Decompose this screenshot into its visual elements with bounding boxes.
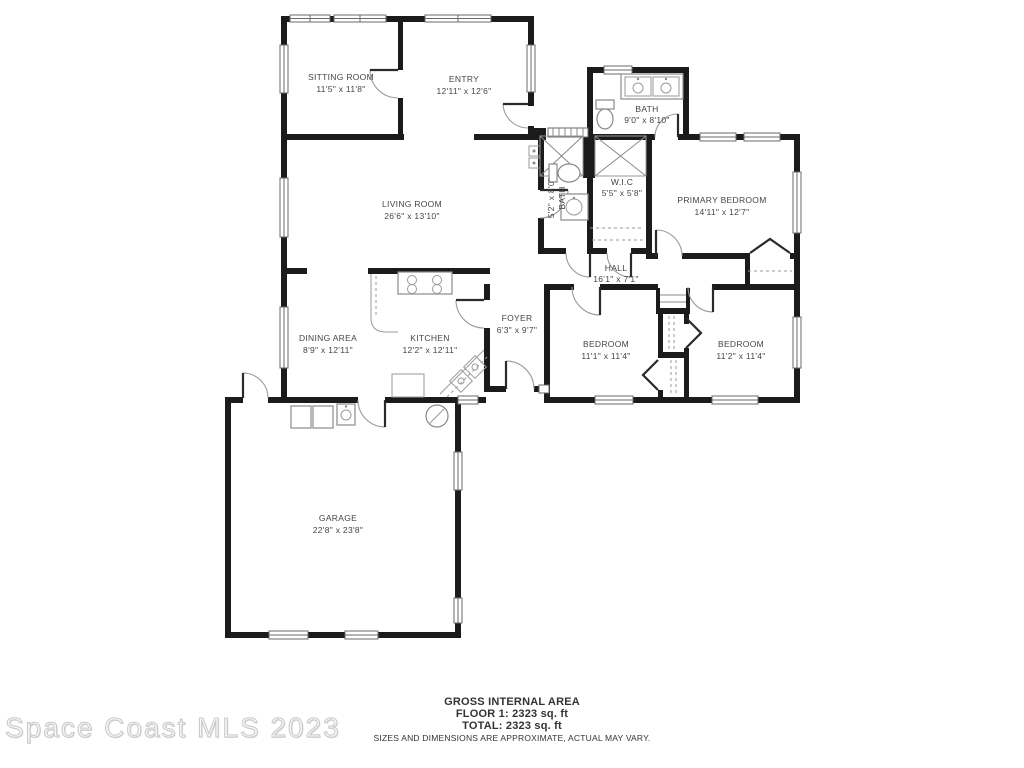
room-dims-bath2: 5'2" x 8'0" <box>546 178 556 218</box>
room-label-kitchen: KITCHEN <box>410 333 449 343</box>
kitchen-counter <box>371 274 398 332</box>
disclaimer: SIZES AND DIMENSIONS ARE APPROXIMATE, AC… <box>0 732 1024 745</box>
water-heater <box>426 405 448 427</box>
room-dims-kitchen: 12'2" x 12'11" <box>403 345 458 355</box>
room-label-bedroom-1: BEDROOM <box>583 339 629 349</box>
room-label-bath2: BATH <box>557 186 567 209</box>
stove <box>398 272 452 294</box>
primary-closet-bifold <box>750 239 790 253</box>
room-dims-primary-bedroom: 14'11" x 12'7" <box>695 207 750 217</box>
room-label-bedroom-2: BEDROOM <box>718 339 764 349</box>
room-label-entry: ENTRY <box>449 74 479 84</box>
room-dims-hall: 16'1" x 7'1" <box>593 274 639 284</box>
kitchen-island <box>392 374 424 397</box>
room-dims-wic: 5'5" x 5'8" <box>602 188 642 198</box>
room-label-living-room: LIVING ROOM <box>382 199 442 209</box>
gross-area-title: GROSS INTERNAL AREA <box>0 696 1024 708</box>
room-label-sitting-room: SITTING ROOM <box>308 72 374 82</box>
room-label-foyer: FOYER <box>502 313 533 323</box>
floor1-area: FLOOR 1: 2323 sq. ft <box>0 708 1024 720</box>
bath-toilet <box>596 100 614 129</box>
room-dims-bedroom-1: 11'1" x 11'4" <box>581 351 630 361</box>
room-dims-entry: 12'11" x 12'6" <box>437 86 492 96</box>
room-dims-bedroom-2: 11'2" x 11'4" <box>716 351 765 361</box>
bath-vanity <box>621 74 683 99</box>
room-dims-foyer: 6'3" x 9'7" <box>497 325 537 335</box>
area-summary: GROSS INTERNAL AREA FLOOR 1: 2323 sq. ft… <box>0 696 1024 745</box>
room-dims-sitting-room: 11'5" x 11'8" <box>316 84 365 94</box>
room-label-garage: GARAGE <box>319 513 357 523</box>
room-label-bath: BATH <box>635 104 658 114</box>
room-dims-bath: 9'0" x 8'10" <box>624 115 670 125</box>
room-label-wic: W.I.C <box>611 177 633 187</box>
room-dims-dining-area: 8'9" x 12'11" <box>303 345 353 355</box>
room-label-primary-bedroom: PRIMARY BEDROOM <box>677 195 766 205</box>
washer-dryer <box>291 406 333 428</box>
floorplan-svg: SITTING ROOM 11'5" x 11'8" ENTRY 12'11" … <box>0 0 1024 768</box>
room-dims-garage: 22'8" x 23'8" <box>313 525 364 535</box>
room-label-hall: HALL <box>605 263 627 273</box>
room-label-dining-area: DINING AREA <box>299 333 357 343</box>
room-labels: SITTING ROOM 11'5" x 11'8" ENTRY 12'11" … <box>299 72 767 535</box>
total-area: TOTAL: 2323 sq. ft <box>0 720 1024 732</box>
room-dims-living-room: 26'6" x 13'10" <box>384 211 440 221</box>
x-closet-2 <box>595 136 646 176</box>
utility-sink <box>337 404 355 425</box>
floorplan-page: SITTING ROOM 11'5" x 11'8" ENTRY 12'11" … <box>0 0 1024 768</box>
kitchen-sink <box>450 356 487 393</box>
bedroom1-closet-bifold <box>643 360 658 390</box>
